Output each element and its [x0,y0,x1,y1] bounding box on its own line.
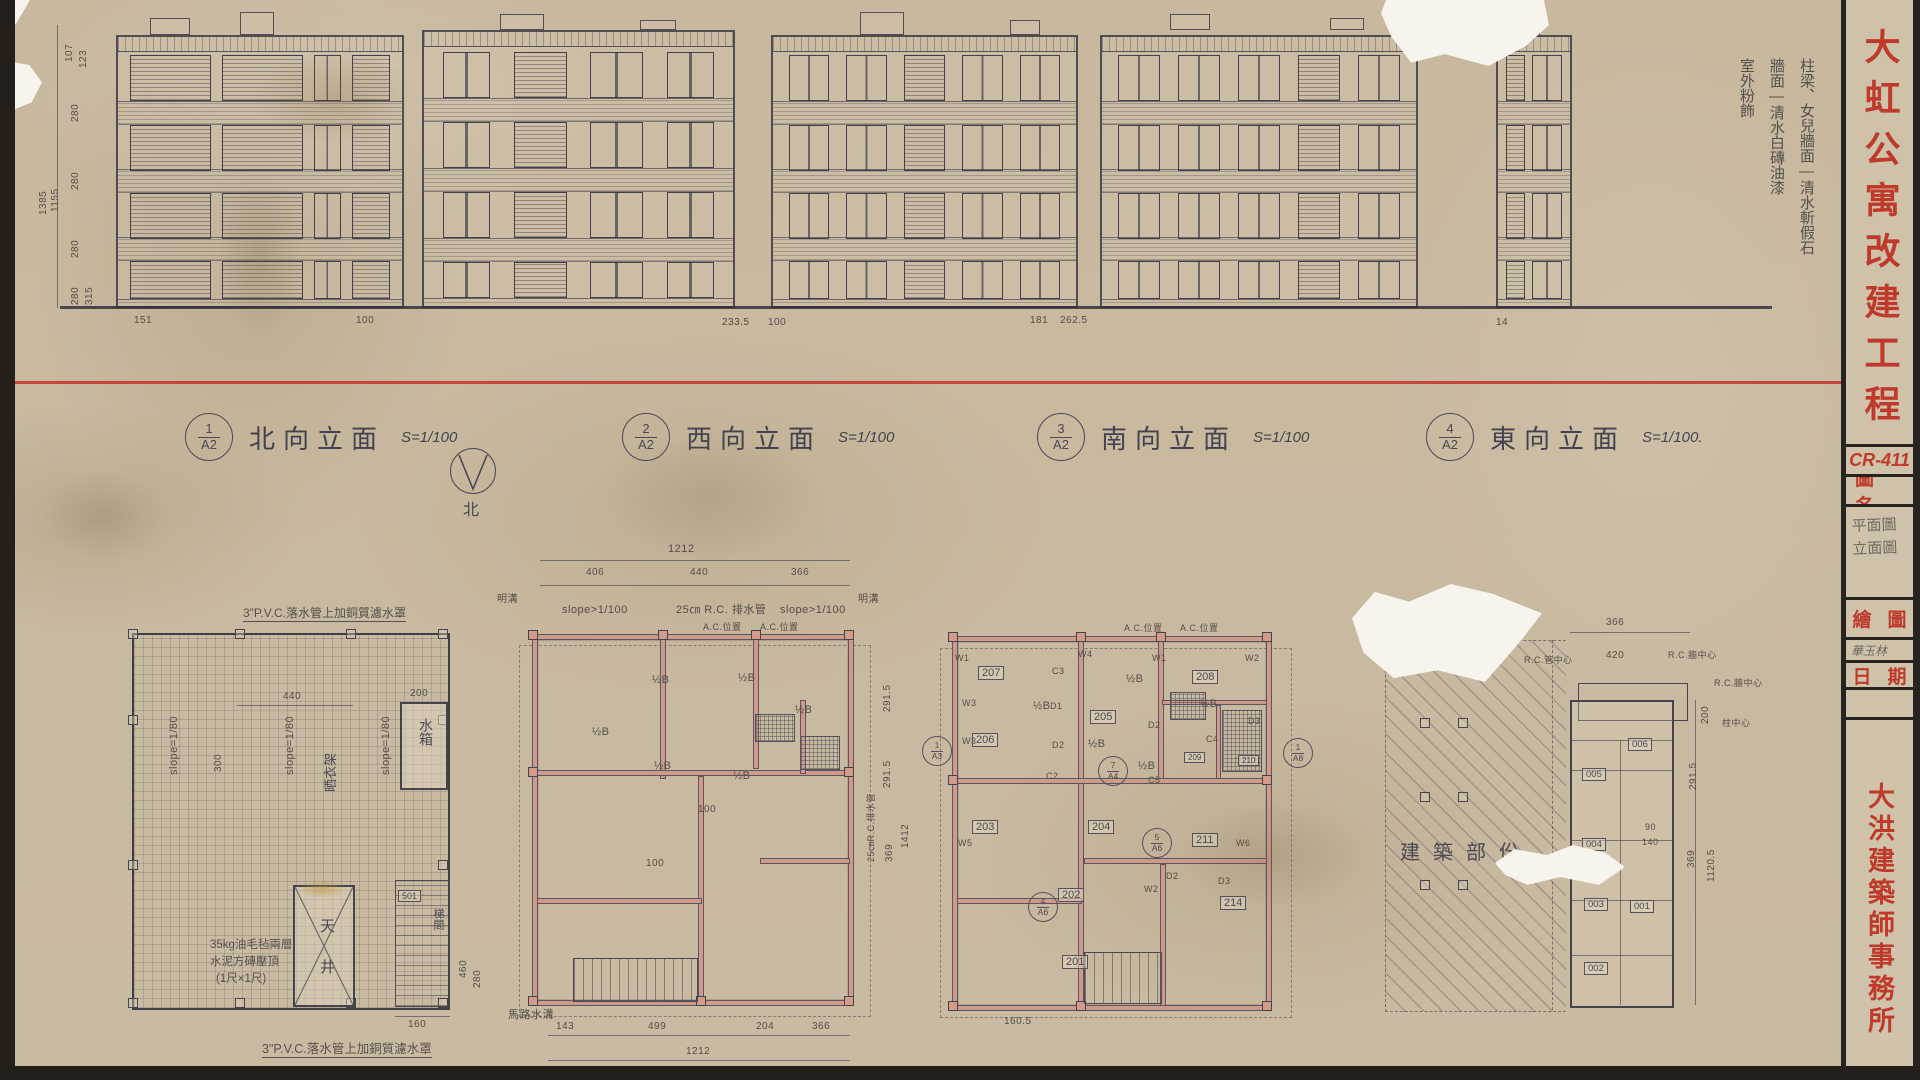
spandrel-band [1498,169,1570,193]
room-number: 209 [1184,752,1205,763]
rc-gutter-note: 25㎝ R.C. 排水管 [676,601,766,617]
dim-label: 1412 [900,824,911,848]
scale-label: S=1/100 [401,429,457,446]
dim-label: 1212 [668,543,694,555]
blueprint-sheet: 151 100 233.5 100 181 262.5 14 107 123 2… [0,0,1920,1080]
building-portion-hatch [1385,640,1566,1012]
bathroom-hatch [800,736,840,770]
dim-label: 160 [408,1019,426,1030]
opening-mark: W4 [1078,649,1093,659]
window-row [431,192,726,238]
dim-label: 107 [64,44,75,62]
dim-label: 181 [1030,315,1048,326]
dim-label: 1212 [686,1046,710,1057]
window [1020,193,1060,239]
title-block: 大虹公寓改建工程 CR-411 圖名 平面圖 立面圖 繪圖 華玉林 日期 大洪建… [1841,0,1920,1080]
opening-mark: D3 [1248,716,1261,726]
louver-panel [352,125,390,171]
louver-panel [130,261,211,299]
opening-mark: D3 [1218,876,1231,886]
window-row [1109,261,1409,299]
window [846,125,886,171]
wall-segment [1084,858,1267,864]
window [904,193,944,239]
spandrel-band [773,237,1076,261]
window [789,261,829,299]
window-row [125,261,395,299]
window [789,193,829,239]
drawing-name-value-cell: 平面圖 立面圖 [1846,507,1913,600]
window [904,261,944,299]
window [514,192,567,238]
dimension-line [57,25,58,308]
drawing-name-line2: 立面圖 [1852,537,1908,561]
dim-label: 460 [458,960,469,978]
window [443,122,490,168]
dim-label: 100 [356,315,374,326]
dim-label: 315 [84,287,95,305]
window [789,55,829,101]
window [1358,55,1400,101]
roof-bulkhead [860,12,904,35]
dim-label: 366 [812,1021,830,1032]
window [1298,55,1340,101]
window [443,262,490,298]
window [314,193,341,239]
dim-label: 143 [556,1021,574,1032]
north-label: 北 [463,496,479,520]
drain-note: 明溝 [858,590,879,605]
bathroom-hatch [755,714,795,742]
column-marker [235,998,245,1008]
window-row [1502,261,1566,299]
dim-label: 440 [690,567,708,578]
louver-panel [222,261,303,299]
wall-line [1572,740,1672,741]
column-marker [528,996,538,1006]
dimension-line [548,1035,850,1036]
sheet-number: CR-411 [1849,450,1910,471]
column-marker [1262,632,1272,642]
spandrel-band [118,237,402,261]
window [1506,55,1525,101]
opening-mark: C2 [1046,771,1059,781]
window-row [780,55,1069,101]
dim-label: 366 [1606,617,1624,628]
window [314,55,341,101]
wall-thickness-label: ½B [652,674,670,686]
column-marker [128,998,138,1008]
dim-label: 123 [78,50,89,68]
window [1118,55,1160,101]
wall-segment [660,639,666,779]
column-marker [438,860,448,870]
detail-reference: 4A6 [1028,892,1058,922]
room-number: 201 [1062,955,1088,969]
wall-thickness-label: ½B [738,672,756,684]
window [1020,55,1060,101]
room-number: 203 [972,820,998,834]
window-row [431,262,726,298]
roof-bulkhead [1170,14,1210,30]
wall-line [1572,955,1672,956]
dim-label: 151 [134,315,152,326]
window-row [1502,193,1566,239]
dimension-line [1570,632,1690,633]
column-marker [1458,880,1468,890]
dim-label: 291.5 [882,684,893,712]
finish-notes: 柱梁、女兒牆面—清水斬假石 牆面—清水白磚油漆 室外粉飾 [1736,58,1817,308]
opening-mark: W1 [1152,653,1167,663]
spandrel-band [118,101,402,125]
column-marker [1458,718,1468,728]
window [667,262,714,298]
window [590,122,643,168]
room-number: 207 [978,666,1004,680]
window [314,125,341,171]
reference-bubble: 4A2 [1426,413,1474,461]
elevation-title-west: 2A2 西向立面 S=1/100 [622,413,894,461]
paving-note: (1尺×1尺) [216,970,266,986]
dim-label: 291.5 [882,760,893,788]
dim-label: 406 [586,567,604,578]
opening-mark: W2 [1245,653,1260,663]
drawn-by-label-cell: 繪圖 [1846,600,1913,640]
paving-note: 水泥方磚壓頂 [210,953,279,969]
window [590,52,643,98]
window-row [125,193,395,239]
ac-note: A.C.位置 [703,620,742,633]
room-number: 005 [1582,768,1606,781]
column-marker [1262,1001,1272,1011]
window [514,262,567,298]
room-number: 204 [1088,820,1114,834]
louver-panel [130,55,211,101]
room-number: 006 [1628,738,1652,751]
window [789,125,829,171]
project-title: 大虹公寓改建工程 [1854,0,1906,444]
column-marker [1420,880,1430,890]
red-divider-line [0,381,1841,384]
ac-note: A.C.位置 [760,620,799,633]
opening-mark: D2 [1166,871,1179,881]
window-row [1502,125,1566,171]
wall-thickness-label: ½B [1200,698,1218,710]
window [1020,261,1060,299]
window [443,52,490,98]
window [846,55,886,101]
wall-thickness-label: ½B [592,726,610,738]
elevation-title-north: 1A2 北向立面 S=1/100 [185,413,457,461]
elevation-title-east: 4A2 東向立面 S=1/100. [1426,413,1702,461]
opening-mark: W3 [962,698,977,708]
column-marker [1458,792,1468,802]
wall-thickness-label: ½B [733,770,751,782]
window [962,125,1002,171]
detail-reference: 7A4 [1098,756,1128,786]
window-row [431,52,726,98]
louver-panel [222,125,303,171]
opening-mark: C3 [1052,666,1065,676]
wall-thickness-label: ½B [654,760,672,772]
window [962,261,1002,299]
opening-mark: W3 [962,736,977,746]
window-row [780,261,1069,299]
rc-pipe-note: 25㎝R.C.排水管 [864,793,877,862]
window-row [1109,193,1409,239]
window [443,192,490,238]
dimension-line [237,705,353,706]
window [1532,193,1563,239]
column-marker [235,629,245,639]
window [1238,261,1280,299]
window [1020,125,1060,171]
dimension-line [548,1060,850,1061]
window [514,52,567,98]
dim-label: 280 [70,240,81,258]
spandrel-band [773,101,1076,125]
column-marker [1262,775,1272,785]
dim-label: 140 [1642,837,1659,847]
dim-label: 262.5 [1060,315,1088,326]
roof-bulkhead [500,14,544,30]
room-number: 210 [1238,755,1259,766]
window [667,52,714,98]
roof-note-top: 3"P.V.C.落水管上加銅質濾水罩 [243,604,406,622]
window-row [1502,55,1566,101]
finish-note: 室外粉飾 [1736,58,1757,118]
dim-label: 499 [648,1021,666,1032]
window [514,122,567,168]
room-number: 002 [1584,962,1608,975]
property-line [1552,640,1554,1010]
slope-label: slope=1/80 [168,716,180,775]
column-marker [658,630,668,640]
dim-label: 100 [646,858,664,869]
spandrel-band [773,169,1076,193]
wall-thickness-label: ½B [1126,673,1144,685]
spandrel-band [424,168,733,192]
dim-label: 14 [1496,317,1508,328]
parapet-band [118,37,402,52]
firm-name: 大洪建築師事務所 [1860,720,1899,1080]
window [962,193,1002,239]
column-marker [528,630,538,640]
window [1358,193,1400,239]
room-number: 202 [1058,888,1084,902]
dim-label: 280 [70,104,81,122]
window [1506,125,1525,171]
finish-note: 牆面—清水白磚油漆 [1766,58,1787,195]
louver-panel [352,261,390,299]
window-row [780,193,1069,239]
date-label-cell: 日期 [1846,663,1913,690]
dim-label: 291.5 [1688,762,1699,790]
elevation-name: 南向立面 [1101,419,1237,456]
window [1298,125,1340,171]
window [1298,261,1340,299]
column-marker [128,629,138,639]
elevation-east-wing [1496,35,1572,308]
window [667,192,714,238]
elevation-west-drawing [422,30,735,308]
opening-mark: C5 [1148,775,1161,785]
room-number: 214 [1220,896,1246,910]
louver-panel [352,55,390,101]
window [1118,261,1160,299]
louver-panel [352,193,390,239]
window [1532,55,1563,101]
column-marker [1420,792,1430,802]
wall-thickness-label: ½B [795,704,813,716]
window [1506,193,1525,239]
room-number: 501 [398,890,421,902]
room-number: 205 [1090,710,1116,724]
dim-label: 90 [1645,822,1656,832]
room-number: 001 [1630,900,1654,913]
window [1178,193,1220,239]
window-row [780,125,1069,171]
rc-note: R.C.管中心 [1524,653,1573,666]
opening-mark: W5 [958,838,973,848]
spandrel-band [1102,237,1416,261]
firm-name-cell: 大洪建築師事務所 [1846,720,1913,1080]
column-marker [128,715,138,725]
column-marker [1076,632,1086,642]
spandrel-band [1498,237,1570,261]
wall-thickness-label: ½B [1138,760,1156,772]
roof-bulkhead [150,18,190,35]
wall-thickness-label: ½B [1033,700,1051,712]
dim-label: 280 [70,287,81,305]
window [1178,55,1220,101]
rc-note: R.C.牆中心 [1714,676,1763,689]
drawn-by-label: 繪圖 [1852,605,1913,632]
dim-label: 100 [768,317,786,328]
column-marker [1420,718,1430,728]
window [962,55,1002,101]
dim-label: 300 [213,754,224,772]
dim-label: 200 [1700,706,1711,724]
water-tank [400,702,448,790]
window [1178,261,1220,299]
elevation-east-drawing [1100,35,1418,308]
window [1298,193,1340,239]
window-row [1109,55,1409,101]
dim-label: 1155 [50,188,61,212]
detail-reference: 5A6 [1142,828,1172,858]
window-row [125,55,395,101]
dim-label: 420 [1606,650,1624,661]
water-tank-label: 水箱 [416,718,436,746]
opening-mark: D2 [1148,720,1161,730]
column-marker [844,767,854,777]
roof-bulkhead [240,12,274,35]
spandrel-band [1102,101,1416,125]
window [1506,261,1525,299]
detail-reference: 1A8 [1283,738,1313,768]
north-arrow-icon [450,448,496,494]
opening-mark: W1 [955,653,970,663]
column-marker [128,860,138,870]
room-number: 211 [1192,833,1218,847]
finish-note: 柱梁、女兒牆面—清水斬假石 [1796,58,1817,255]
elevation-name: 北向立面 [249,419,385,456]
opening-mark: D1 [1050,701,1063,711]
opening-mark: C4 [1206,734,1219,744]
dim-label: 369 [1686,850,1697,868]
sheet-edge-bottom [0,1066,1920,1080]
wall-segment [753,639,759,769]
dim-label: 100 [698,804,716,815]
spandrel-band [118,169,402,193]
opening-mark: W6 [1236,838,1251,848]
column-marker [438,629,448,639]
roof-note-bottom: 3"P.V.C.落水管上加銅質濾水罩 [262,1038,432,1058]
scale-label: S=1/100 [838,429,894,446]
room-number: 003 [1584,898,1608,911]
louver-panel [222,55,303,101]
window [846,193,886,239]
opening-mark: W2 [1144,884,1159,894]
spandrel-band [424,238,733,262]
dim-label: 1385 [38,191,49,215]
slope-label: slope=1/80 [380,716,392,775]
roof-bulkhead [1330,18,1364,30]
reference-bubble: 3A2 [1037,413,1085,461]
window [904,55,944,101]
elevation-south-drawing [771,35,1078,308]
spandrel-band [424,98,733,122]
dim-label: 204 [756,1021,774,1032]
column-marker [844,996,854,1006]
window [1532,261,1563,299]
dim-label: 200 [410,688,428,699]
wall-segment [760,858,850,864]
light-well-label: 天井 [316,918,337,1000]
parapet-band [1102,37,1416,52]
floor-plan-2-walls [533,635,853,1005]
spandrel-band [1498,101,1570,125]
parapet-band [773,37,1076,52]
dim-label: 369 [884,844,895,862]
louver-panel [222,193,303,239]
louver-panel [130,193,211,239]
sheet-edge-left [0,0,15,1080]
column-marker [528,767,538,777]
window [1238,193,1280,239]
window [314,261,341,299]
ac-note: A.C.位置 [1180,621,1219,634]
window [1178,125,1220,171]
elevation-name: 東向立面 [1490,419,1626,456]
column-marker [1156,632,1166,642]
column-marker [346,629,356,639]
dim-label: 160.5 [1004,1016,1032,1027]
scale-label: S=1/100 [1253,429,1309,446]
window [1532,125,1563,171]
detail-reference: 1A3 [922,736,952,766]
roof-bulkhead [1010,20,1040,35]
window [904,125,944,171]
window [1358,261,1400,299]
window-row [1109,125,1409,171]
slope-note: slope>1/100 [780,604,846,616]
window [590,262,643,298]
reference-bubble: 2A2 [622,413,670,461]
dim-label: 1120.5 [1706,849,1717,882]
slope-label: slope=1/80 [284,716,296,775]
